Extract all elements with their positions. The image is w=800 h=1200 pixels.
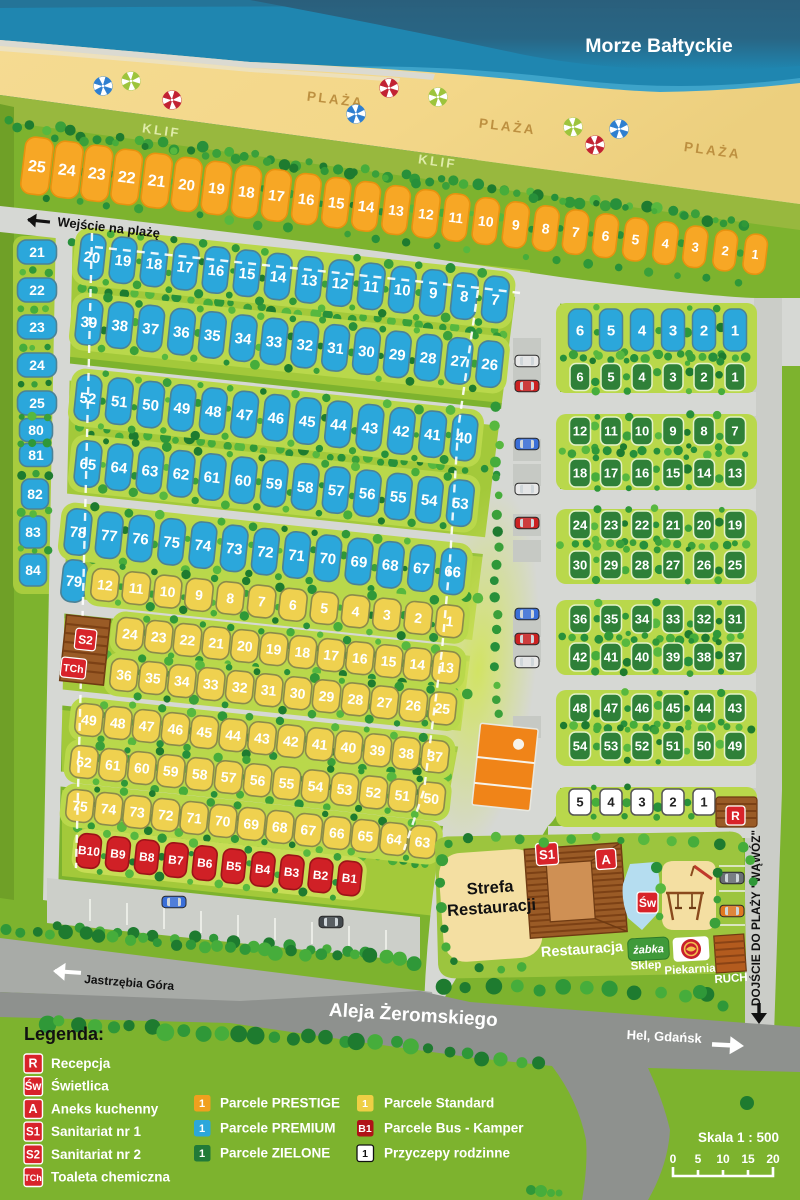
svg-text:23: 23 [87, 165, 107, 184]
svg-text:80: 80 [28, 422, 44, 438]
svg-text:44: 44 [697, 701, 712, 716]
svg-text:33: 33 [202, 675, 219, 693]
svg-text:24: 24 [121, 625, 138, 643]
svg-text:16: 16 [635, 466, 649, 481]
svg-text:42: 42 [282, 732, 299, 750]
svg-text:28: 28 [419, 349, 437, 368]
svg-text:20: 20 [177, 176, 196, 195]
svg-text:B9: B9 [110, 846, 127, 862]
svg-text:50: 50 [141, 396, 159, 415]
svg-text:A: A [28, 1102, 37, 1116]
svg-text:18: 18 [145, 255, 163, 274]
svg-text:Św: Św [639, 895, 657, 910]
svg-text:67: 67 [412, 560, 430, 579]
svg-text:48: 48 [573, 701, 587, 716]
svg-text:S1: S1 [539, 846, 556, 862]
svg-text:49: 49 [80, 711, 97, 729]
svg-text:43: 43 [253, 729, 270, 747]
svg-text:12: 12 [96, 576, 113, 594]
svg-text:31: 31 [728, 612, 742, 627]
svg-text:48: 48 [109, 714, 126, 732]
svg-text:5: 5 [607, 370, 614, 385]
svg-text:72: 72 [256, 543, 274, 562]
svg-text:30: 30 [289, 684, 306, 702]
svg-text:B1: B1 [358, 1123, 372, 1135]
svg-text:19: 19 [114, 252, 132, 271]
svg-text:64: 64 [110, 459, 129, 478]
svg-text:21: 21 [666, 518, 680, 533]
svg-text:31: 31 [326, 339, 344, 358]
svg-text:6: 6 [576, 322, 584, 339]
svg-text:22: 22 [29, 282, 45, 298]
svg-text:32: 32 [697, 612, 711, 627]
svg-text:B10: B10 [77, 843, 101, 859]
svg-text:66: 66 [443, 563, 461, 582]
svg-text:38: 38 [111, 317, 129, 336]
svg-text:17: 17 [267, 187, 286, 206]
svg-text:27: 27 [450, 352, 468, 371]
svg-text:22: 22 [117, 169, 137, 188]
svg-text:45: 45 [196, 723, 213, 741]
svg-text:17: 17 [604, 466, 618, 481]
svg-text:RUCH: RUCH [714, 972, 748, 986]
svg-text:Morze Bałtyckie: Morze Bałtyckie [585, 35, 733, 57]
svg-text:1: 1 [362, 1148, 368, 1160]
svg-text:18: 18 [294, 643, 311, 661]
svg-text:1: 1 [731, 370, 738, 385]
svg-text:68: 68 [271, 818, 288, 836]
svg-text:69: 69 [243, 815, 260, 833]
svg-text:63: 63 [414, 833, 431, 851]
svg-text:41: 41 [423, 426, 441, 445]
svg-text:57: 57 [220, 768, 237, 786]
svg-text:65: 65 [357, 827, 374, 845]
svg-text:Sanitariat nr 2: Sanitariat nr 2 [51, 1147, 141, 1162]
svg-text:59: 59 [162, 762, 179, 780]
svg-text:29: 29 [604, 558, 618, 573]
svg-text:69: 69 [350, 553, 368, 572]
svg-text:75: 75 [71, 797, 88, 815]
svg-text:39: 39 [666, 650, 680, 665]
svg-text:B1: B1 [341, 871, 358, 887]
svg-text:23: 23 [150, 628, 167, 646]
svg-text:36: 36 [172, 323, 190, 342]
svg-text:1: 1 [362, 1098, 368, 1110]
svg-text:26: 26 [481, 356, 499, 375]
svg-text:56: 56 [249, 771, 266, 789]
svg-text:S2: S2 [26, 1149, 40, 1161]
svg-text:56: 56 [358, 485, 376, 504]
svg-text:55: 55 [278, 775, 295, 793]
svg-text:10: 10 [393, 281, 411, 300]
svg-text:67: 67 [300, 821, 317, 839]
svg-text:23: 23 [29, 319, 45, 335]
svg-text:17: 17 [176, 258, 194, 277]
svg-text:53: 53 [336, 781, 353, 799]
svg-text:28: 28 [635, 558, 649, 573]
svg-text:35: 35 [203, 327, 221, 346]
svg-text:20: 20 [766, 1152, 780, 1166]
svg-text:6: 6 [576, 370, 583, 385]
svg-text:16: 16 [207, 262, 225, 281]
svg-text:28: 28 [347, 691, 364, 709]
svg-text:82: 82 [27, 486, 43, 502]
svg-text:35: 35 [144, 669, 161, 687]
svg-text:15: 15 [666, 466, 680, 481]
svg-text:30: 30 [573, 558, 587, 573]
svg-text:15: 15 [380, 652, 397, 670]
svg-text:77: 77 [100, 527, 118, 546]
svg-text:13: 13 [728, 466, 742, 481]
svg-text:B6: B6 [196, 856, 213, 872]
svg-text:11: 11 [448, 209, 465, 227]
svg-text:18: 18 [237, 183, 256, 202]
svg-text:46: 46 [267, 409, 285, 428]
svg-text:Legenda:: Legenda: [24, 1024, 104, 1044]
svg-text:36: 36 [573, 612, 587, 627]
svg-text:S2: S2 [78, 632, 94, 647]
svg-text:1: 1 [700, 795, 707, 810]
svg-text:5: 5 [576, 795, 583, 810]
svg-text:52: 52 [365, 784, 382, 802]
svg-text:B5: B5 [225, 859, 242, 875]
svg-text:14: 14 [269, 268, 288, 287]
svg-text:8: 8 [700, 424, 707, 439]
svg-text:10: 10 [716, 1152, 730, 1166]
svg-text:1: 1 [199, 1148, 205, 1160]
svg-text:40: 40 [635, 650, 649, 665]
svg-text:10: 10 [635, 424, 649, 439]
svg-text:19: 19 [207, 180, 226, 199]
svg-text:B2: B2 [312, 868, 329, 884]
svg-text:11: 11 [128, 580, 145, 597]
svg-text:44: 44 [225, 726, 242, 744]
svg-text:TCh: TCh [63, 662, 85, 676]
svg-text:Parcele PREMIUM: Parcele PREMIUM [220, 1121, 336, 1136]
svg-text:B3: B3 [283, 865, 300, 881]
svg-text:68: 68 [381, 556, 399, 575]
svg-text:Recepcja: Recepcja [51, 1056, 111, 1071]
svg-text:34: 34 [234, 330, 253, 349]
svg-text:83: 83 [25, 524, 41, 540]
svg-text:2: 2 [669, 795, 676, 810]
svg-text:49: 49 [728, 739, 742, 754]
svg-text:38: 38 [398, 745, 415, 763]
svg-text:37: 37 [141, 320, 159, 339]
svg-text:37: 37 [728, 650, 742, 665]
svg-text:59: 59 [265, 475, 283, 494]
svg-text:22: 22 [179, 631, 196, 649]
svg-text:21: 21 [147, 172, 167, 191]
svg-text:54: 54 [573, 739, 588, 754]
svg-text:57: 57 [327, 482, 345, 501]
svg-text:70: 70 [319, 550, 337, 569]
svg-text:1: 1 [199, 1123, 205, 1135]
svg-text:30: 30 [357, 343, 375, 362]
svg-text:20: 20 [697, 518, 711, 533]
svg-text:17: 17 [323, 646, 340, 664]
svg-text:26: 26 [405, 697, 422, 715]
svg-text:12: 12 [417, 205, 435, 223]
svg-text:11: 11 [362, 278, 380, 297]
svg-text:34: 34 [173, 672, 190, 690]
svg-text:23: 23 [604, 518, 618, 533]
svg-text:20: 20 [236, 637, 253, 655]
svg-text:61: 61 [203, 469, 221, 488]
svg-text:65: 65 [79, 456, 97, 475]
svg-text:51: 51 [394, 787, 411, 805]
svg-text:43: 43 [361, 419, 379, 438]
svg-text:76: 76 [131, 530, 149, 549]
svg-text:50: 50 [423, 790, 440, 808]
svg-text:29: 29 [318, 688, 335, 706]
svg-text:14: 14 [697, 466, 712, 481]
svg-text:32: 32 [231, 678, 248, 696]
svg-text:16: 16 [351, 649, 368, 667]
svg-text:64: 64 [385, 830, 402, 848]
svg-text:63: 63 [141, 462, 159, 481]
svg-text:22: 22 [635, 518, 649, 533]
svg-text:S1: S1 [26, 1127, 41, 1139]
svg-text:53: 53 [604, 739, 618, 754]
svg-text:71: 71 [186, 809, 203, 827]
svg-text:27: 27 [376, 694, 393, 712]
svg-text:33: 33 [265, 333, 283, 352]
svg-text:55: 55 [389, 488, 407, 507]
svg-text:73: 73 [225, 540, 243, 559]
svg-text:81: 81 [28, 447, 44, 463]
svg-text:31: 31 [260, 681, 277, 699]
svg-text:48: 48 [204, 403, 222, 422]
svg-text:40: 40 [340, 739, 357, 757]
svg-text:46: 46 [167, 720, 184, 738]
svg-text:24: 24 [57, 161, 77, 180]
svg-text:24: 24 [573, 518, 588, 533]
svg-text:50: 50 [697, 739, 711, 754]
svg-text:54: 54 [420, 491, 439, 510]
svg-text:26: 26 [697, 558, 711, 573]
svg-text:Przyczepy rodzinne: Przyczepy rodzinne [384, 1146, 511, 1161]
svg-text:60: 60 [133, 759, 150, 777]
svg-text:84: 84 [25, 562, 41, 578]
svg-text:15: 15 [741, 1152, 755, 1166]
svg-text:12: 12 [331, 275, 349, 294]
svg-text:8: 8 [459, 288, 469, 306]
svg-text:R: R [28, 1057, 37, 1071]
svg-text:38: 38 [697, 650, 711, 665]
svg-text:27: 27 [666, 558, 680, 573]
svg-text:10: 10 [477, 212, 495, 230]
svg-text:29: 29 [388, 346, 406, 365]
svg-text:10: 10 [159, 583, 176, 601]
svg-text:49: 49 [173, 399, 191, 418]
svg-text:Strefa: Strefa [466, 877, 515, 898]
svg-text:13: 13 [387, 201, 405, 219]
svg-text:41: 41 [311, 735, 328, 753]
svg-text:71: 71 [287, 547, 305, 566]
svg-text:61: 61 [104, 756, 121, 774]
svg-text:15: 15 [327, 194, 346, 213]
svg-text:73: 73 [129, 803, 146, 821]
svg-text:4: 4 [638, 322, 647, 339]
svg-text:72: 72 [157, 806, 174, 824]
svg-text:54: 54 [307, 778, 324, 796]
svg-text:25: 25 [728, 558, 742, 573]
svg-text:R: R [731, 809, 740, 823]
svg-text:Skala 1 : 500: Skala 1 : 500 [698, 1130, 779, 1145]
svg-text:15: 15 [238, 265, 256, 284]
svg-text:33: 33 [666, 612, 680, 627]
svg-text:3: 3 [669, 322, 677, 339]
svg-text:52: 52 [635, 739, 649, 754]
svg-text:B7: B7 [167, 852, 184, 868]
svg-text:2: 2 [700, 322, 708, 339]
svg-text:58: 58 [191, 765, 208, 783]
svg-text:Parcele ZIELONE: Parcele ZIELONE [220, 1146, 330, 1161]
svg-text:74: 74 [100, 800, 117, 818]
svg-text:13: 13 [300, 271, 318, 290]
svg-text:5: 5 [607, 322, 615, 339]
svg-text:A: A [601, 852, 612, 868]
svg-text:B4: B4 [254, 862, 271, 878]
svg-text:46: 46 [635, 701, 649, 716]
svg-text:11: 11 [604, 424, 618, 439]
svg-text:Aneks kuchenny: Aneks kuchenny [51, 1101, 159, 1116]
svg-text:47: 47 [138, 717, 155, 735]
svg-text:5: 5 [695, 1152, 702, 1166]
svg-text:74: 74 [194, 537, 213, 556]
svg-text:42: 42 [573, 650, 587, 665]
svg-text:Parcele PRESTIGE: Parcele PRESTIGE [220, 1096, 340, 1111]
svg-text:Sklep: Sklep [630, 959, 661, 973]
svg-text:44: 44 [329, 416, 348, 435]
svg-text:14: 14 [409, 655, 426, 673]
svg-text:79: 79 [65, 573, 83, 592]
svg-text:14: 14 [357, 198, 376, 217]
svg-text:1: 1 [731, 322, 739, 339]
svg-text:42: 42 [392, 422, 410, 441]
svg-text:0: 0 [670, 1152, 677, 1166]
svg-text:25: 25 [27, 158, 47, 177]
svg-text:25: 25 [434, 700, 451, 718]
svg-text:Parcele Standard: Parcele Standard [384, 1096, 494, 1111]
svg-text:39: 39 [369, 742, 386, 760]
svg-text:75: 75 [162, 533, 180, 552]
svg-text:4: 4 [607, 795, 615, 810]
svg-text:34: 34 [635, 612, 650, 627]
svg-text:3: 3 [669, 370, 676, 385]
svg-text:Parcele Bus - Kamper: Parcele Bus - Kamper [384, 1121, 524, 1136]
svg-text:TCh: TCh [24, 1173, 42, 1183]
svg-text:3: 3 [638, 795, 645, 810]
svg-text:21: 21 [29, 244, 45, 260]
svg-text:51: 51 [110, 393, 128, 412]
svg-text:19: 19 [265, 640, 282, 658]
svg-text:1: 1 [199, 1098, 205, 1110]
svg-text:47: 47 [235, 406, 253, 425]
svg-text:B8: B8 [139, 849, 156, 865]
svg-text:24: 24 [29, 357, 45, 373]
svg-text:32: 32 [296, 336, 314, 355]
svg-text:12: 12 [573, 424, 587, 439]
svg-text:60: 60 [234, 472, 252, 491]
svg-text:9: 9 [428, 285, 438, 303]
svg-text:żabka: żabka [632, 943, 664, 957]
svg-text:62: 62 [172, 465, 190, 484]
svg-text:43: 43 [728, 701, 742, 716]
svg-text:66: 66 [328, 824, 345, 842]
svg-text:41: 41 [604, 650, 618, 665]
svg-text:2: 2 [700, 370, 707, 385]
svg-text:70: 70 [214, 812, 231, 830]
svg-text:7: 7 [731, 424, 738, 439]
svg-text:45: 45 [298, 413, 316, 432]
svg-text:35: 35 [604, 612, 618, 627]
svg-text:16: 16 [297, 191, 316, 210]
svg-text:47: 47 [604, 701, 618, 716]
svg-text:51: 51 [666, 739, 680, 754]
svg-text:18: 18 [573, 466, 587, 481]
svg-text:Świetlica: Świetlica [51, 1079, 109, 1094]
svg-text:19: 19 [728, 518, 742, 533]
svg-text:Św: Św [25, 1080, 42, 1093]
svg-text:45: 45 [666, 701, 680, 716]
svg-text:25: 25 [29, 395, 45, 411]
svg-text:Sanitariat nr 1: Sanitariat nr 1 [51, 1124, 142, 1139]
svg-text:58: 58 [296, 478, 314, 497]
svg-text:21: 21 [208, 634, 225, 652]
svg-text:Toaleta chemiczna: Toaleta chemiczna [51, 1170, 171, 1185]
svg-text:9: 9 [669, 424, 676, 439]
svg-text:36: 36 [115, 666, 132, 684]
svg-text:4: 4 [638, 370, 646, 385]
svg-text:7: 7 [490, 291, 500, 309]
